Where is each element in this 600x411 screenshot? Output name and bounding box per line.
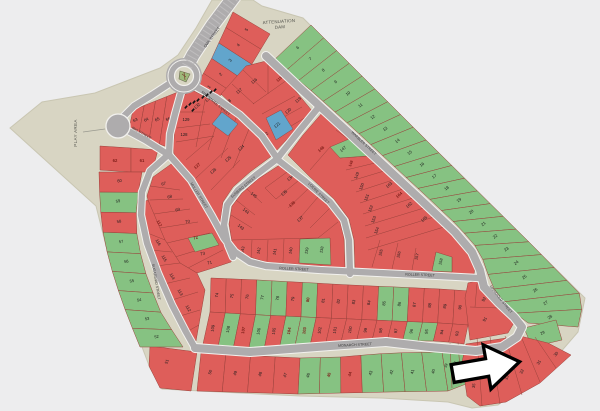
- svg-text:129: 129: [183, 117, 191, 122]
- svg-text:DAM: DAM: [275, 24, 286, 30]
- svg-text:128: 128: [181, 132, 189, 137]
- svg-text:62: 62: [113, 158, 118, 163]
- svg-text:61: 61: [140, 158, 145, 163]
- svg-text:PLAY AREA: PLAY AREA: [73, 119, 78, 147]
